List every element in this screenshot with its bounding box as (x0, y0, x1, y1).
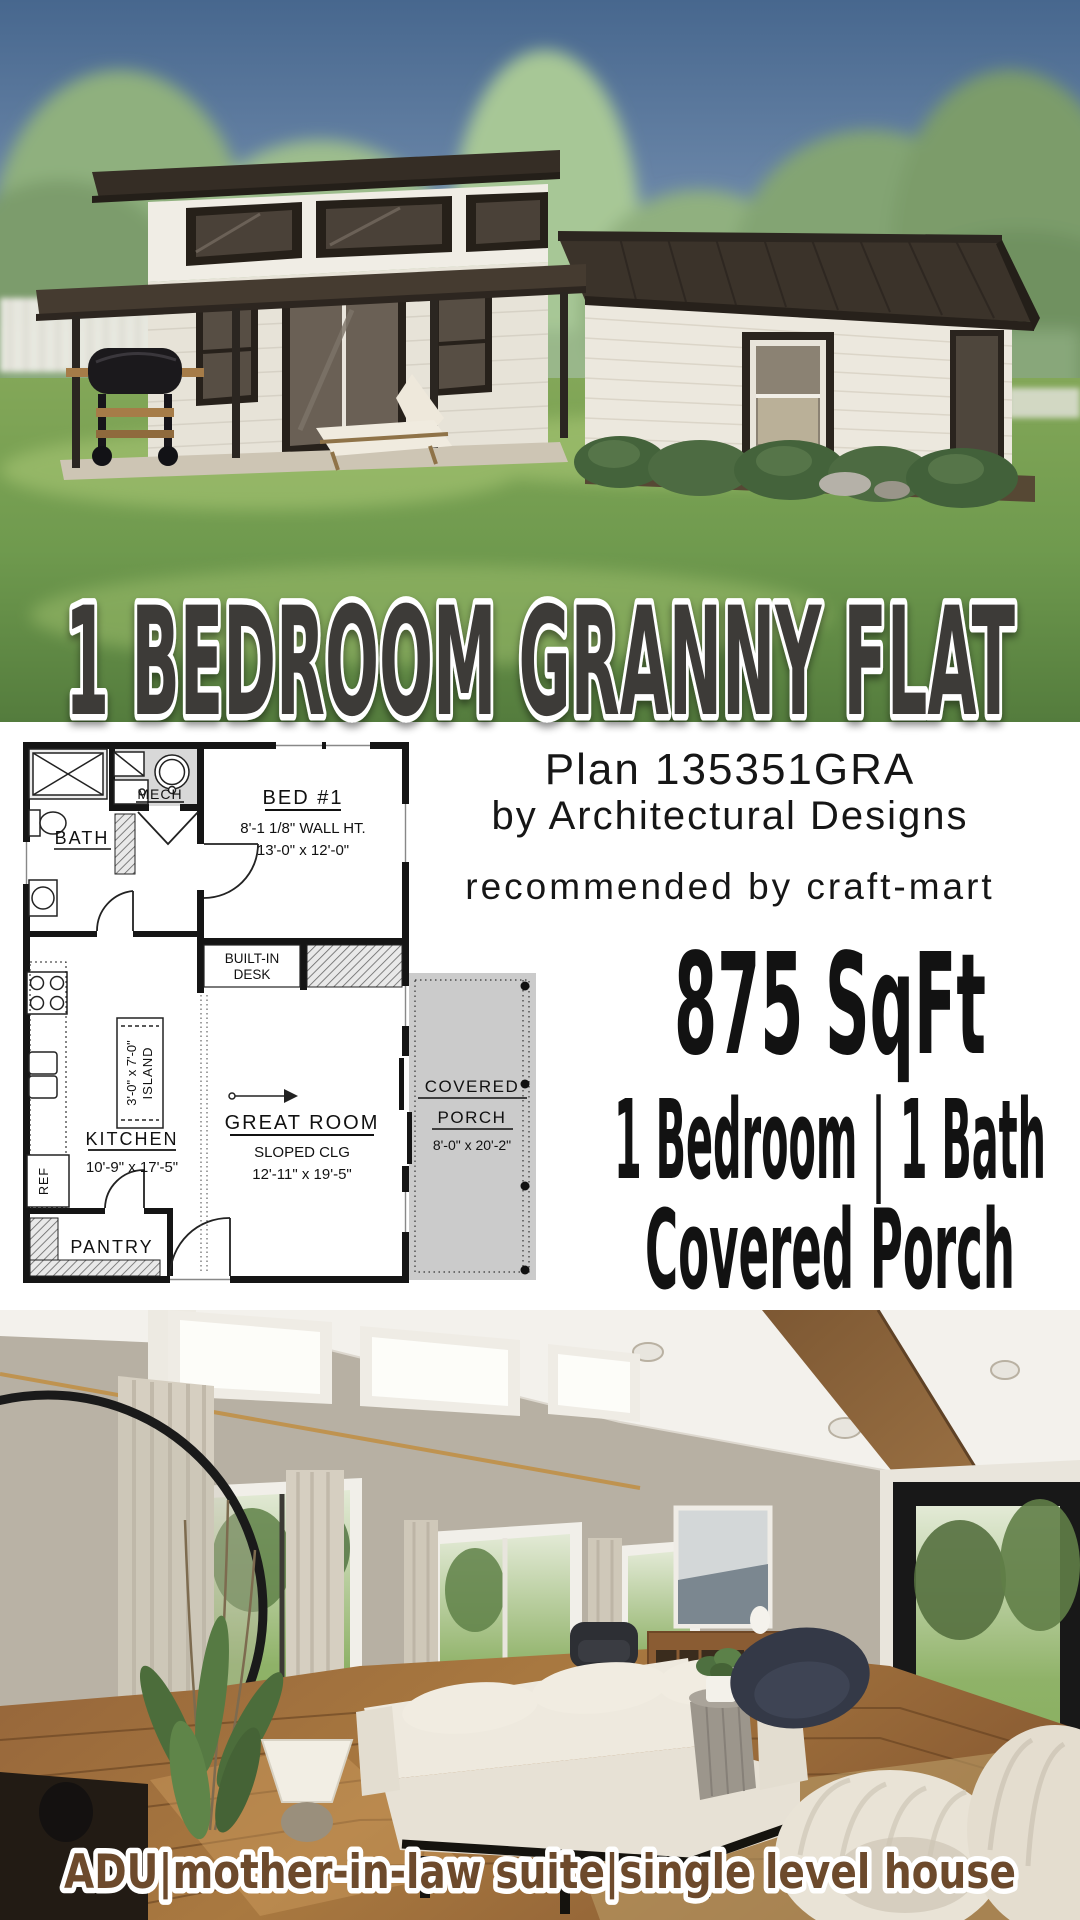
island-dims: 3'-0" x 7'-0" (124, 1040, 139, 1106)
stats-block: 875 SqFt 1 Bedroom | 1 Bath Covered Porc… (520, 945, 1080, 1305)
toilet-tank (29, 810, 40, 836)
wall-art (676, 1508, 770, 1634)
ref-label: REF (37, 1167, 51, 1195)
title-text: 1 BEDROOM GRANNY FLAT (65, 594, 1015, 744)
rock (819, 472, 871, 496)
caption-text: ADU|mother-in-law suite|single level hou… (64, 1845, 1016, 1900)
black-vase (39, 1782, 93, 1842)
kitchen-label: KITCHEN (85, 1129, 178, 1149)
slope-arrow (284, 1089, 298, 1103)
rock (874, 481, 910, 499)
hall-closet (115, 814, 135, 874)
island-label: ISLAND (140, 1047, 155, 1100)
pin-canvas: 1 BEDROOM GRANNY FLAT Plan 135351GRA by … (0, 0, 1080, 1920)
house-right-wing (558, 231, 1040, 508)
side-door (950, 330, 1004, 466)
porch-label-2: PORCH (438, 1108, 507, 1127)
pantry-label: PANTRY (70, 1237, 153, 1257)
mech-door (138, 812, 198, 844)
hatched-casework (30, 814, 402, 1276)
dark-armchair-small (570, 1622, 638, 1668)
white-vase (750, 1606, 770, 1634)
entry-door (170, 1218, 230, 1276)
great-room-label: GREAT ROOM (225, 1112, 380, 1134)
bath-label: BATH (55, 828, 110, 848)
title-banner: 1 BEDROOM GRANNY FLAT (0, 594, 1080, 744)
bedroom-door (204, 844, 258, 898)
desk-bench (307, 945, 402, 987)
bed-dims: 13'-0" x 12'-0" (257, 842, 349, 859)
mech-label: MECH (137, 786, 182, 802)
bed-label: BED #1 (263, 787, 344, 809)
floor-plan: MECH BATH BED #1 8'-1 1/8" WALL HT. 13'-… (20, 740, 540, 1285)
interior-photo: ADU|mother-in-law suite|single level hou… (0, 1310, 1080, 1920)
kitchen-sink (29, 1052, 57, 1074)
porch-dims: 8'-0" x 20'-2" (433, 1137, 511, 1153)
kitchen-dims: 10'-9" x 17'-5" (86, 1159, 178, 1176)
porch-window-right (432, 285, 492, 396)
desk-label-2: DESK (234, 967, 271, 982)
porch-label-1: COVERED (425, 1077, 520, 1096)
stat-feature: Covered Porch (645, 1186, 1015, 1305)
stat-area: 875 SqFt (674, 945, 986, 1087)
bath-door (97, 891, 133, 931)
great-room-ceiling: SLOPED CLG (254, 1144, 350, 1161)
bath-sink (32, 887, 54, 909)
desk-label-1: BUILT-IN (225, 951, 280, 966)
bed-wall-height: 8'-1 1/8" WALL HT. (240, 820, 365, 837)
great-room-dims: 12'-11" x 19'-5" (252, 1166, 352, 1183)
